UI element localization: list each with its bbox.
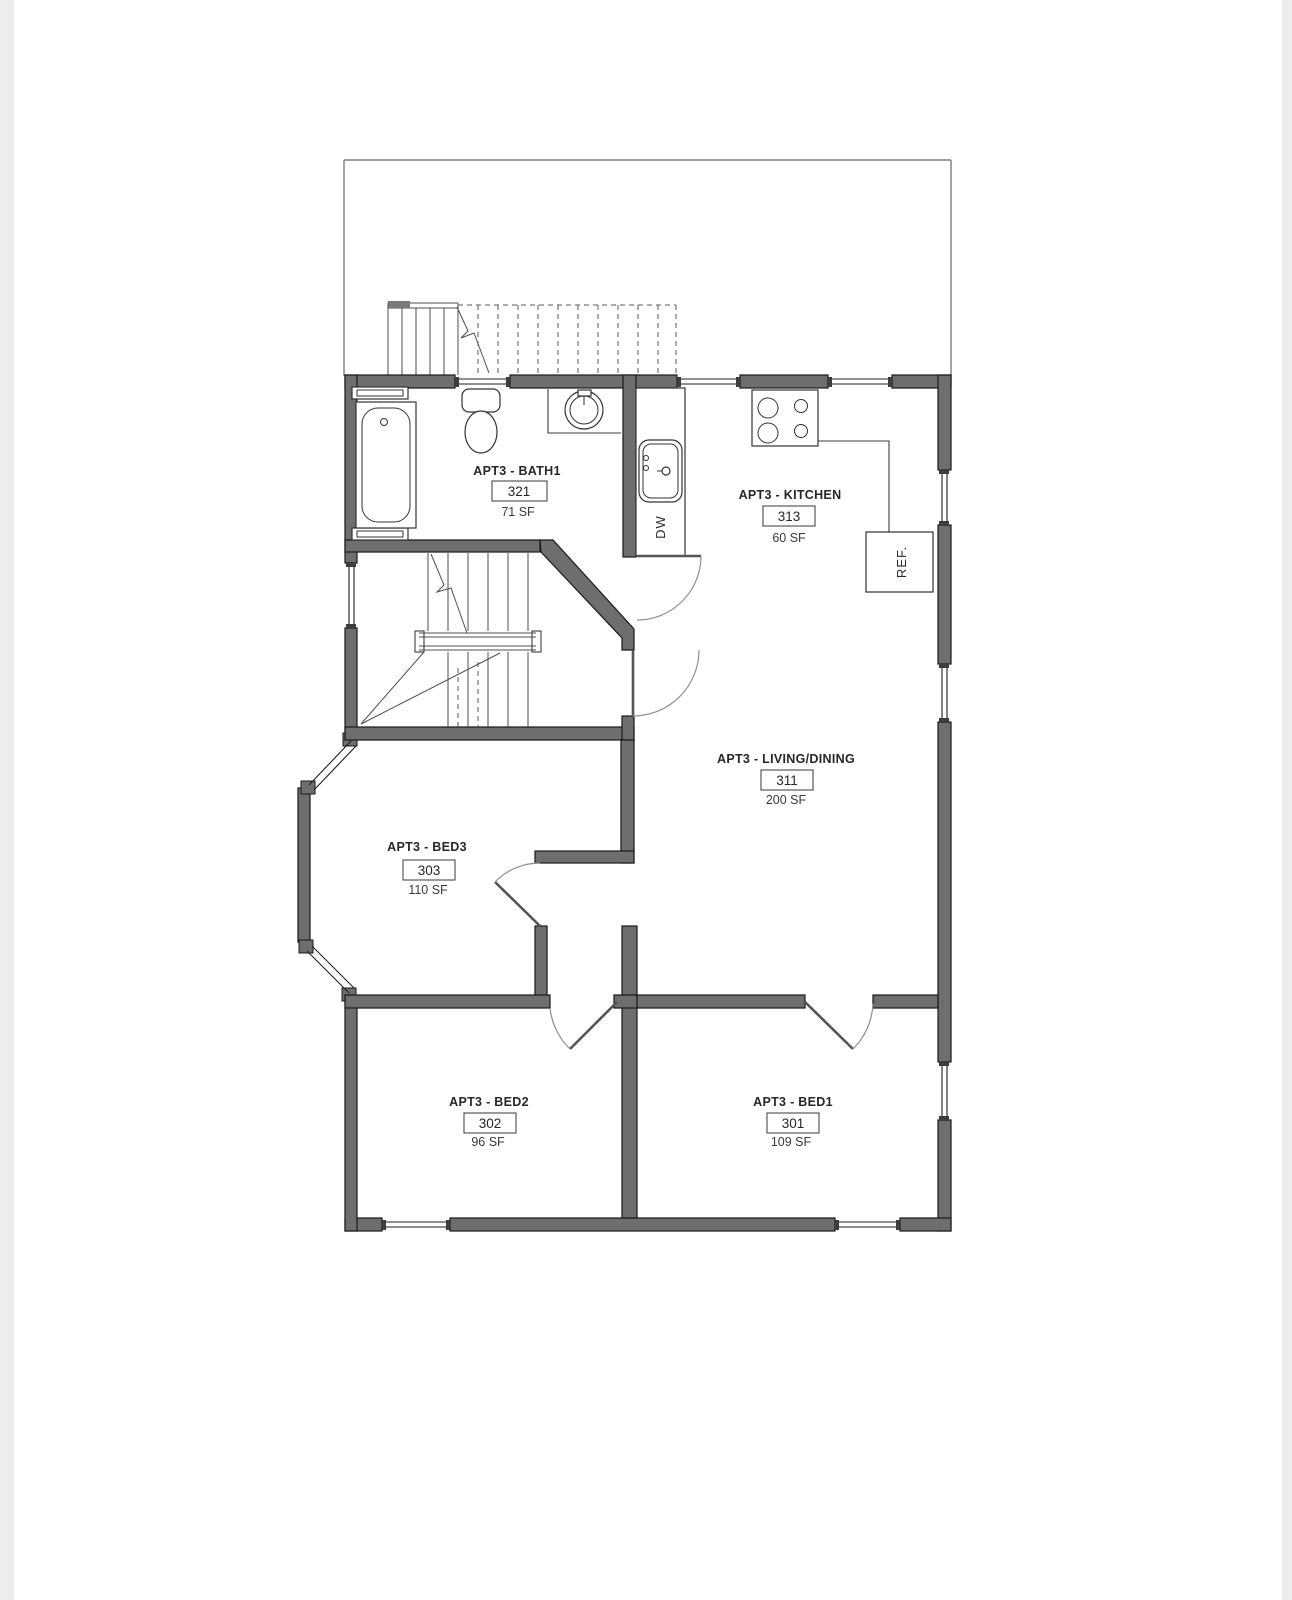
room-number: 321 [508, 484, 531, 499]
room-number: 301 [782, 1116, 805, 1131]
bay-window-wall [298, 788, 310, 942]
exterior-wall-top [345, 375, 455, 388]
room-area: 71 SF [501, 505, 535, 519]
room-name: APT3 - BED1 [753, 1095, 833, 1109]
room-area: 60 SF [772, 531, 806, 545]
stair-nosing [388, 301, 410, 308]
room-name: APT3 - BED2 [449, 1095, 529, 1109]
wall-stairwell-top [345, 540, 540, 552]
refrigerator: REF. [866, 532, 933, 592]
wall-bed3-stub [535, 926, 547, 997]
wall-stairwell-bottom [345, 727, 634, 740]
refrigerator-label: REF. [894, 546, 909, 578]
room-name: APT3 - KITCHEN [739, 488, 842, 502]
bathtub [356, 402, 416, 528]
room-number: 313 [778, 509, 801, 524]
room-name: APT3 - BED3 [387, 840, 467, 854]
kitchen-sink [639, 440, 682, 502]
exterior-wall-right [938, 375, 951, 470]
shelf [352, 387, 408, 399]
room-area: 110 SF [408, 883, 448, 897]
wall-living-west [621, 740, 634, 863]
room-name: APT3 - BATH1 [473, 464, 560, 478]
dishwasher-label: DW [653, 515, 668, 539]
floor-plan-drawing: REF. DW APT3 - BATH1 321 [0, 0, 1292, 1600]
room-area: 96 SF [471, 1135, 505, 1149]
room-number: 303 [418, 863, 441, 878]
room-number: 311 [776, 773, 798, 788]
wall-bed1-top-west [637, 995, 805, 1008]
wall-bed3-bed2 [345, 995, 550, 1008]
paper-sheet [14, 0, 1282, 1600]
room-name: APT3 - LIVING/DINING [717, 752, 855, 766]
shelf [352, 528, 408, 540]
wall-bed2-bed1 [622, 926, 637, 1218]
room-area: 200 SF [766, 793, 807, 807]
stove [752, 390, 818, 446]
floor-plan-page: REF. DW APT3 - BATH1 321 [0, 0, 1292, 1600]
room-area: 109 SF [771, 1135, 812, 1149]
toilet [462, 389, 500, 453]
wall-bath-kitchen [623, 375, 636, 557]
wall-hall [535, 851, 634, 863]
wall-bed1-top-east [873, 995, 938, 1008]
room-number: 302 [479, 1116, 502, 1131]
